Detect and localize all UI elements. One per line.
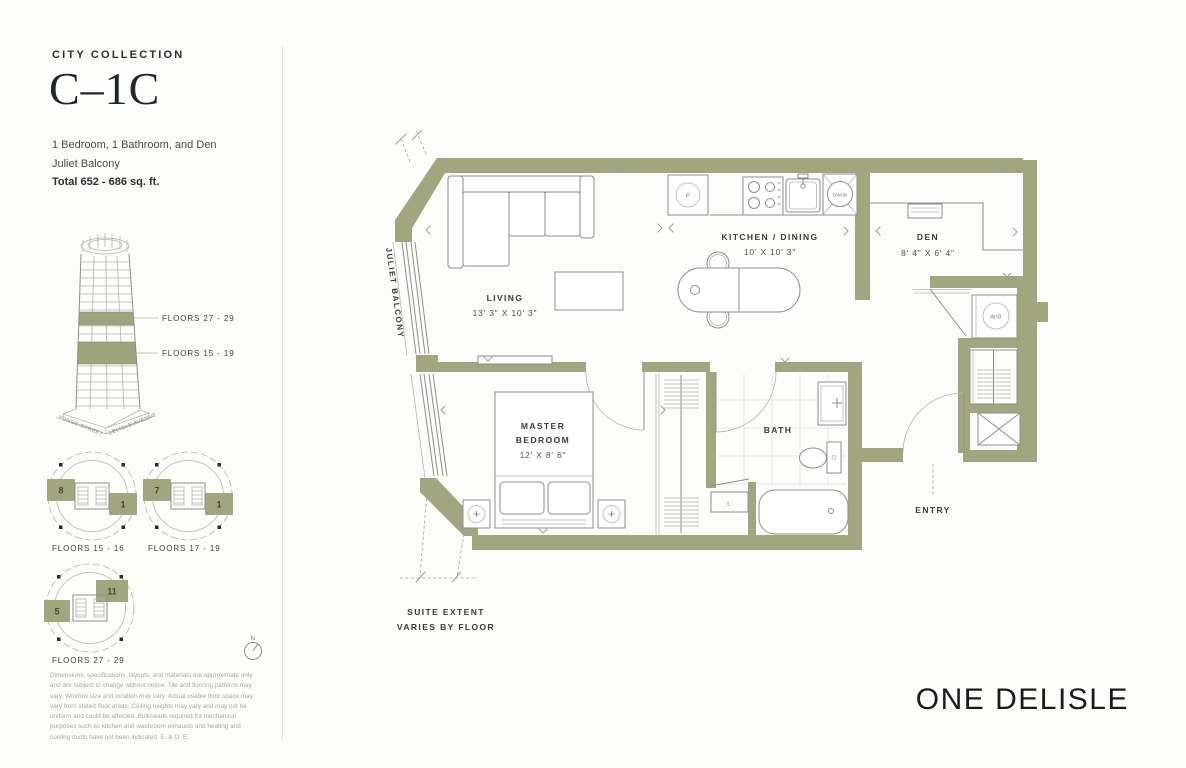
tower-sketch — [56, 233, 154, 434]
juliet-balcony-label: JULIET BALCONY — [384, 247, 406, 339]
sofa-arm-right — [580, 176, 594, 238]
wd-closet-door — [930, 289, 966, 336]
toilet-tank — [827, 442, 841, 473]
bath-door — [716, 372, 776, 432]
kitchen-dims: 10' X 10' 3" — [744, 247, 796, 257]
pillow — [548, 482, 590, 514]
pillow — [500, 482, 544, 514]
collection-title: CITY COLLECTION — [52, 49, 184, 61]
floorplate-caption: FLOORS 17 - 19 — [148, 544, 221, 553]
den-label: DEN — [917, 232, 939, 242]
bedroom-furniture — [463, 392, 625, 528]
toilet-bowl — [800, 448, 827, 468]
den-drawer — [908, 204, 942, 218]
sofa-cushion — [545, 192, 580, 236]
north-label: N — [251, 636, 255, 642]
unit-name: C–1C — [49, 62, 160, 115]
brand-logo: ONE DELISLE — [916, 683, 1129, 717]
bathtub — [759, 490, 848, 534]
dwm-label: DW/M — [833, 193, 847, 198]
den-desk — [870, 203, 1023, 250]
unit-number: 8 — [58, 486, 63, 496]
service-stack — [930, 289, 1020, 445]
street-label-yonge: YONGE STREET — [57, 414, 104, 438]
linen-label: L — [727, 502, 730, 508]
entry-door — [903, 393, 964, 496]
master-label-1: MASTER — [521, 421, 565, 431]
unit-description: 1 Bedroom, 1 Bathroom, and Den — [52, 139, 216, 151]
band-floors-27-29 — [79, 312, 134, 325]
bedroom-closet — [656, 374, 699, 534]
master-dims: 12' X 8' 6" — [520, 450, 567, 460]
floorplate-caption: FLOORS 15 - 16 — [52, 544, 125, 553]
floorplate-diagrams: 8 1 FLOORS 15 - 16 7 1 FLOORS 17 - 19 — [40, 446, 275, 674]
kitchen-appliances — [668, 174, 857, 215]
hall-shelf — [912, 290, 972, 294]
unit-number: 1 — [216, 500, 221, 510]
wd-label: W/D — [991, 315, 1002, 321]
den-dims: 8' 4" X 6' 4" — [901, 248, 955, 258]
living-furniture — [448, 176, 623, 364]
vertical-divider — [282, 46, 283, 740]
unit-number: 7 — [154, 486, 159, 496]
floor-plan: JULIET BALCONY LIVING 13' 3" X 10' 3" KI… — [380, 130, 1050, 675]
band-label-lower: FLOORS 15 - 19 — [162, 349, 235, 358]
floorplate-caption: FLOORS 27 - 29 — [52, 656, 125, 665]
unit-total-area: Total 652 - 686 sq. ft. — [52, 176, 159, 188]
cooktop — [743, 177, 783, 215]
band-floors-15-19 — [78, 342, 137, 364]
unit-number: 5 — [54, 607, 59, 617]
band-label-upper: FLOORS 27 - 29 — [162, 314, 235, 323]
floorplate-17-19: 7 1 — [143, 452, 233, 540]
north-compass: N — [245, 636, 262, 660]
floorplate-15-16: 8 1 — [47, 452, 137, 540]
faucet — [798, 174, 808, 178]
band-callout-lines — [134, 318, 159, 353]
floorplan-sheet: CITY COLLECTION C–1C 1 Bedroom, 1 Bathro… — [0, 0, 1186, 768]
living-dims: 13' 3" X 10' 3" — [473, 308, 538, 318]
dining-island — [678, 252, 800, 328]
bedroom-door — [586, 372, 644, 430]
kitchen-label: KITCHEN / DINING — [721, 232, 818, 242]
fridge-label: F — [686, 194, 690, 200]
sofa-arm-left — [448, 176, 463, 268]
street-label-delisle: DELISLE AVENUE — [108, 412, 158, 437]
entry-label: ENTRY — [915, 505, 951, 515]
bath-label: BATH — [764, 425, 793, 435]
floorplate-27-29: 5 11 — [44, 564, 134, 652]
suite-extent-label-2: VARIES BY FLOOR — [397, 622, 495, 632]
sofa-back — [448, 176, 594, 192]
building-key-illustration: FLOORS 27 - 29 FLOORS 15 - 19 YONGE STRE… — [50, 226, 280, 438]
master-label-2: BEDROOM — [516, 435, 570, 445]
sofa-cushion — [509, 192, 545, 236]
bath-fixtures — [710, 382, 848, 534]
suite-extent-label-1: SUITE EXTENT — [407, 607, 485, 617]
legal-disclaimer: Dimensions, specifications, layouts, and… — [50, 671, 262, 743]
living-label: LIVING — [487, 293, 524, 303]
sofa-chaise — [463, 192, 509, 266]
unit-number: 11 — [107, 587, 117, 597]
unit-number: 1 — [120, 500, 125, 510]
unit-balcony-note: Juliet Balcony — [52, 158, 120, 170]
coffee-table — [555, 272, 623, 310]
